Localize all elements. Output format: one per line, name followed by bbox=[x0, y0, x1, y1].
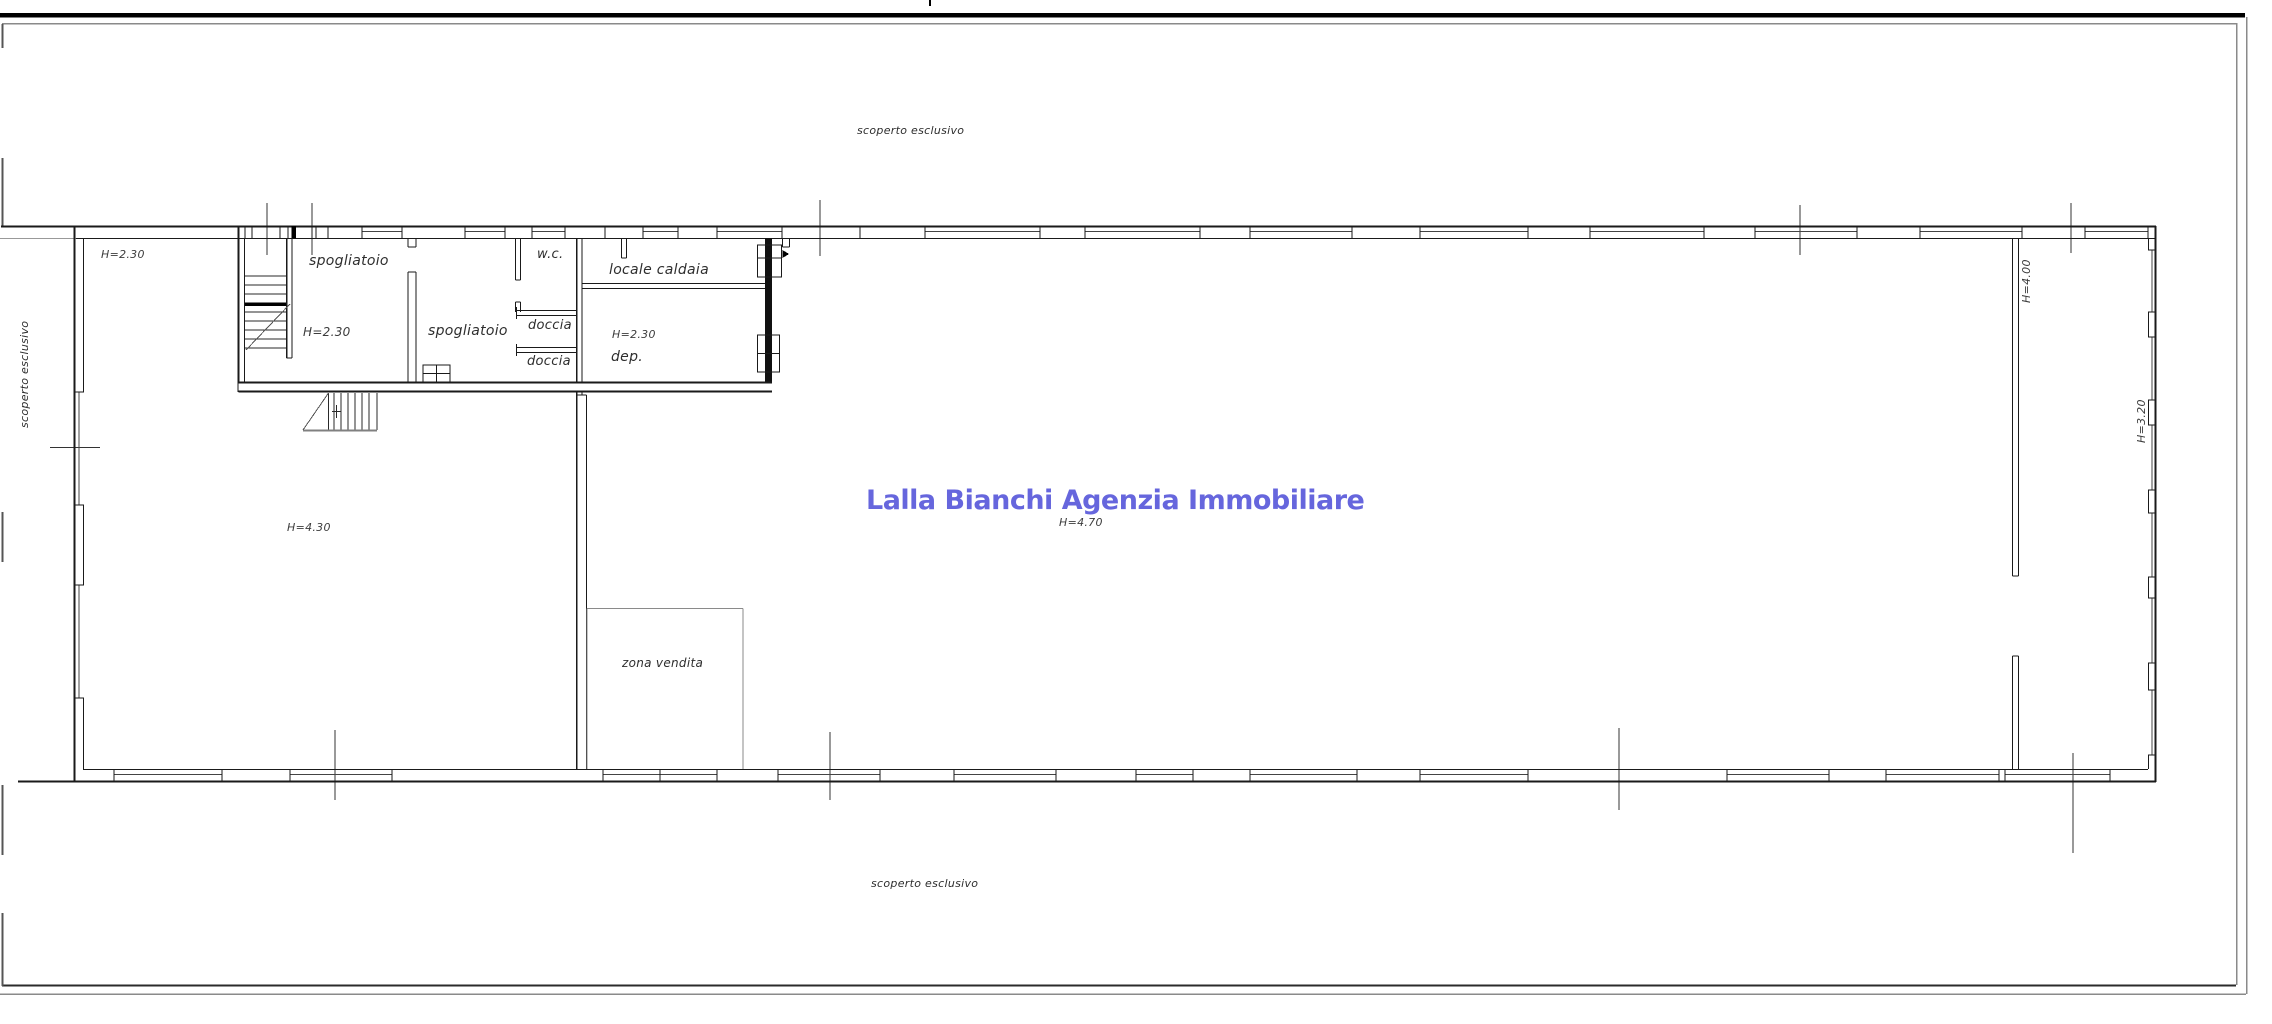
stair-break-line bbox=[303, 393, 329, 430]
top-border-thick-line bbox=[0, 13, 2245, 18]
window-end-ticks bbox=[362, 226, 2148, 239]
boiler-flue bbox=[622, 239, 627, 259]
top-wall-windows bbox=[245, 226, 2148, 247]
cross-pillar bbox=[423, 365, 450, 382]
area-label-scoperto-bottom: scoperto esclusivo bbox=[871, 878, 978, 889]
lower-staircase bbox=[303, 393, 377, 431]
area-label-scoperto-top: scoperto esclusivo bbox=[857, 125, 964, 136]
room-label-locale-caldaia: locale caldaia bbox=[609, 263, 709, 277]
height-label-spogliatoio-upper: H=2.30 bbox=[303, 326, 351, 338]
sales-area-outline bbox=[587, 609, 743, 770]
floor-plan-image: H=2.30 spogliatoio H=2.30 spogliatoio w.… bbox=[0, 0, 2272, 1024]
stair-landing-edge bbox=[245, 303, 286, 307]
room-label-wc: w.c. bbox=[537, 248, 563, 261]
room-label-spogliatoio-lower: spogliatoio bbox=[428, 324, 508, 338]
flow-arrow-icon bbox=[783, 250, 790, 258]
wc-wall bbox=[516, 239, 521, 313]
dep-thick-wall bbox=[765, 238, 772, 392]
agency-watermark: Lalla Bianchi Agenzia Immobiliare bbox=[866, 485, 1364, 516]
chimney-box-upper bbox=[758, 245, 790, 277]
height-label-right-aisle: H=4.00 bbox=[2021, 259, 2032, 303]
room-label-doccia-lower: doccia bbox=[527, 355, 571, 368]
stair-break-line bbox=[246, 304, 290, 350]
height-label-hall-left: H=4.30 bbox=[287, 522, 331, 533]
room-partitions bbox=[239, 226, 790, 769]
window-end-ticks bbox=[114, 769, 2110, 782]
right-aisle-wall bbox=[2013, 239, 2019, 770]
height-label-entry-left: H=2.30 bbox=[101, 249, 145, 260]
entry-door-recess bbox=[783, 239, 790, 248]
height-label-dep: H=2.30 bbox=[612, 329, 656, 340]
room-label-zona-vendita: zona vendita bbox=[622, 657, 703, 669]
area-label-scoperto-left: scoperto esclusivo bbox=[19, 321, 30, 428]
hall-divider-wall bbox=[577, 239, 587, 770]
room-label-dep: dep. bbox=[611, 350, 643, 364]
wall-solid-tick bbox=[292, 226, 297, 239]
vent-band-ticks bbox=[245, 226, 860, 239]
divider-room1-room2 bbox=[408, 239, 416, 383]
room-label-spogliatoio-upper: spogliatoio bbox=[309, 254, 389, 268]
height-label-right-wall: H=3.20 bbox=[2136, 399, 2147, 443]
upper-staircase bbox=[245, 276, 290, 350]
room-label-doccia-upper: doccia bbox=[528, 319, 572, 332]
bottom-wall-windows bbox=[114, 769, 2110, 782]
height-label-main-hall: H=4.70 bbox=[1059, 517, 1103, 528]
